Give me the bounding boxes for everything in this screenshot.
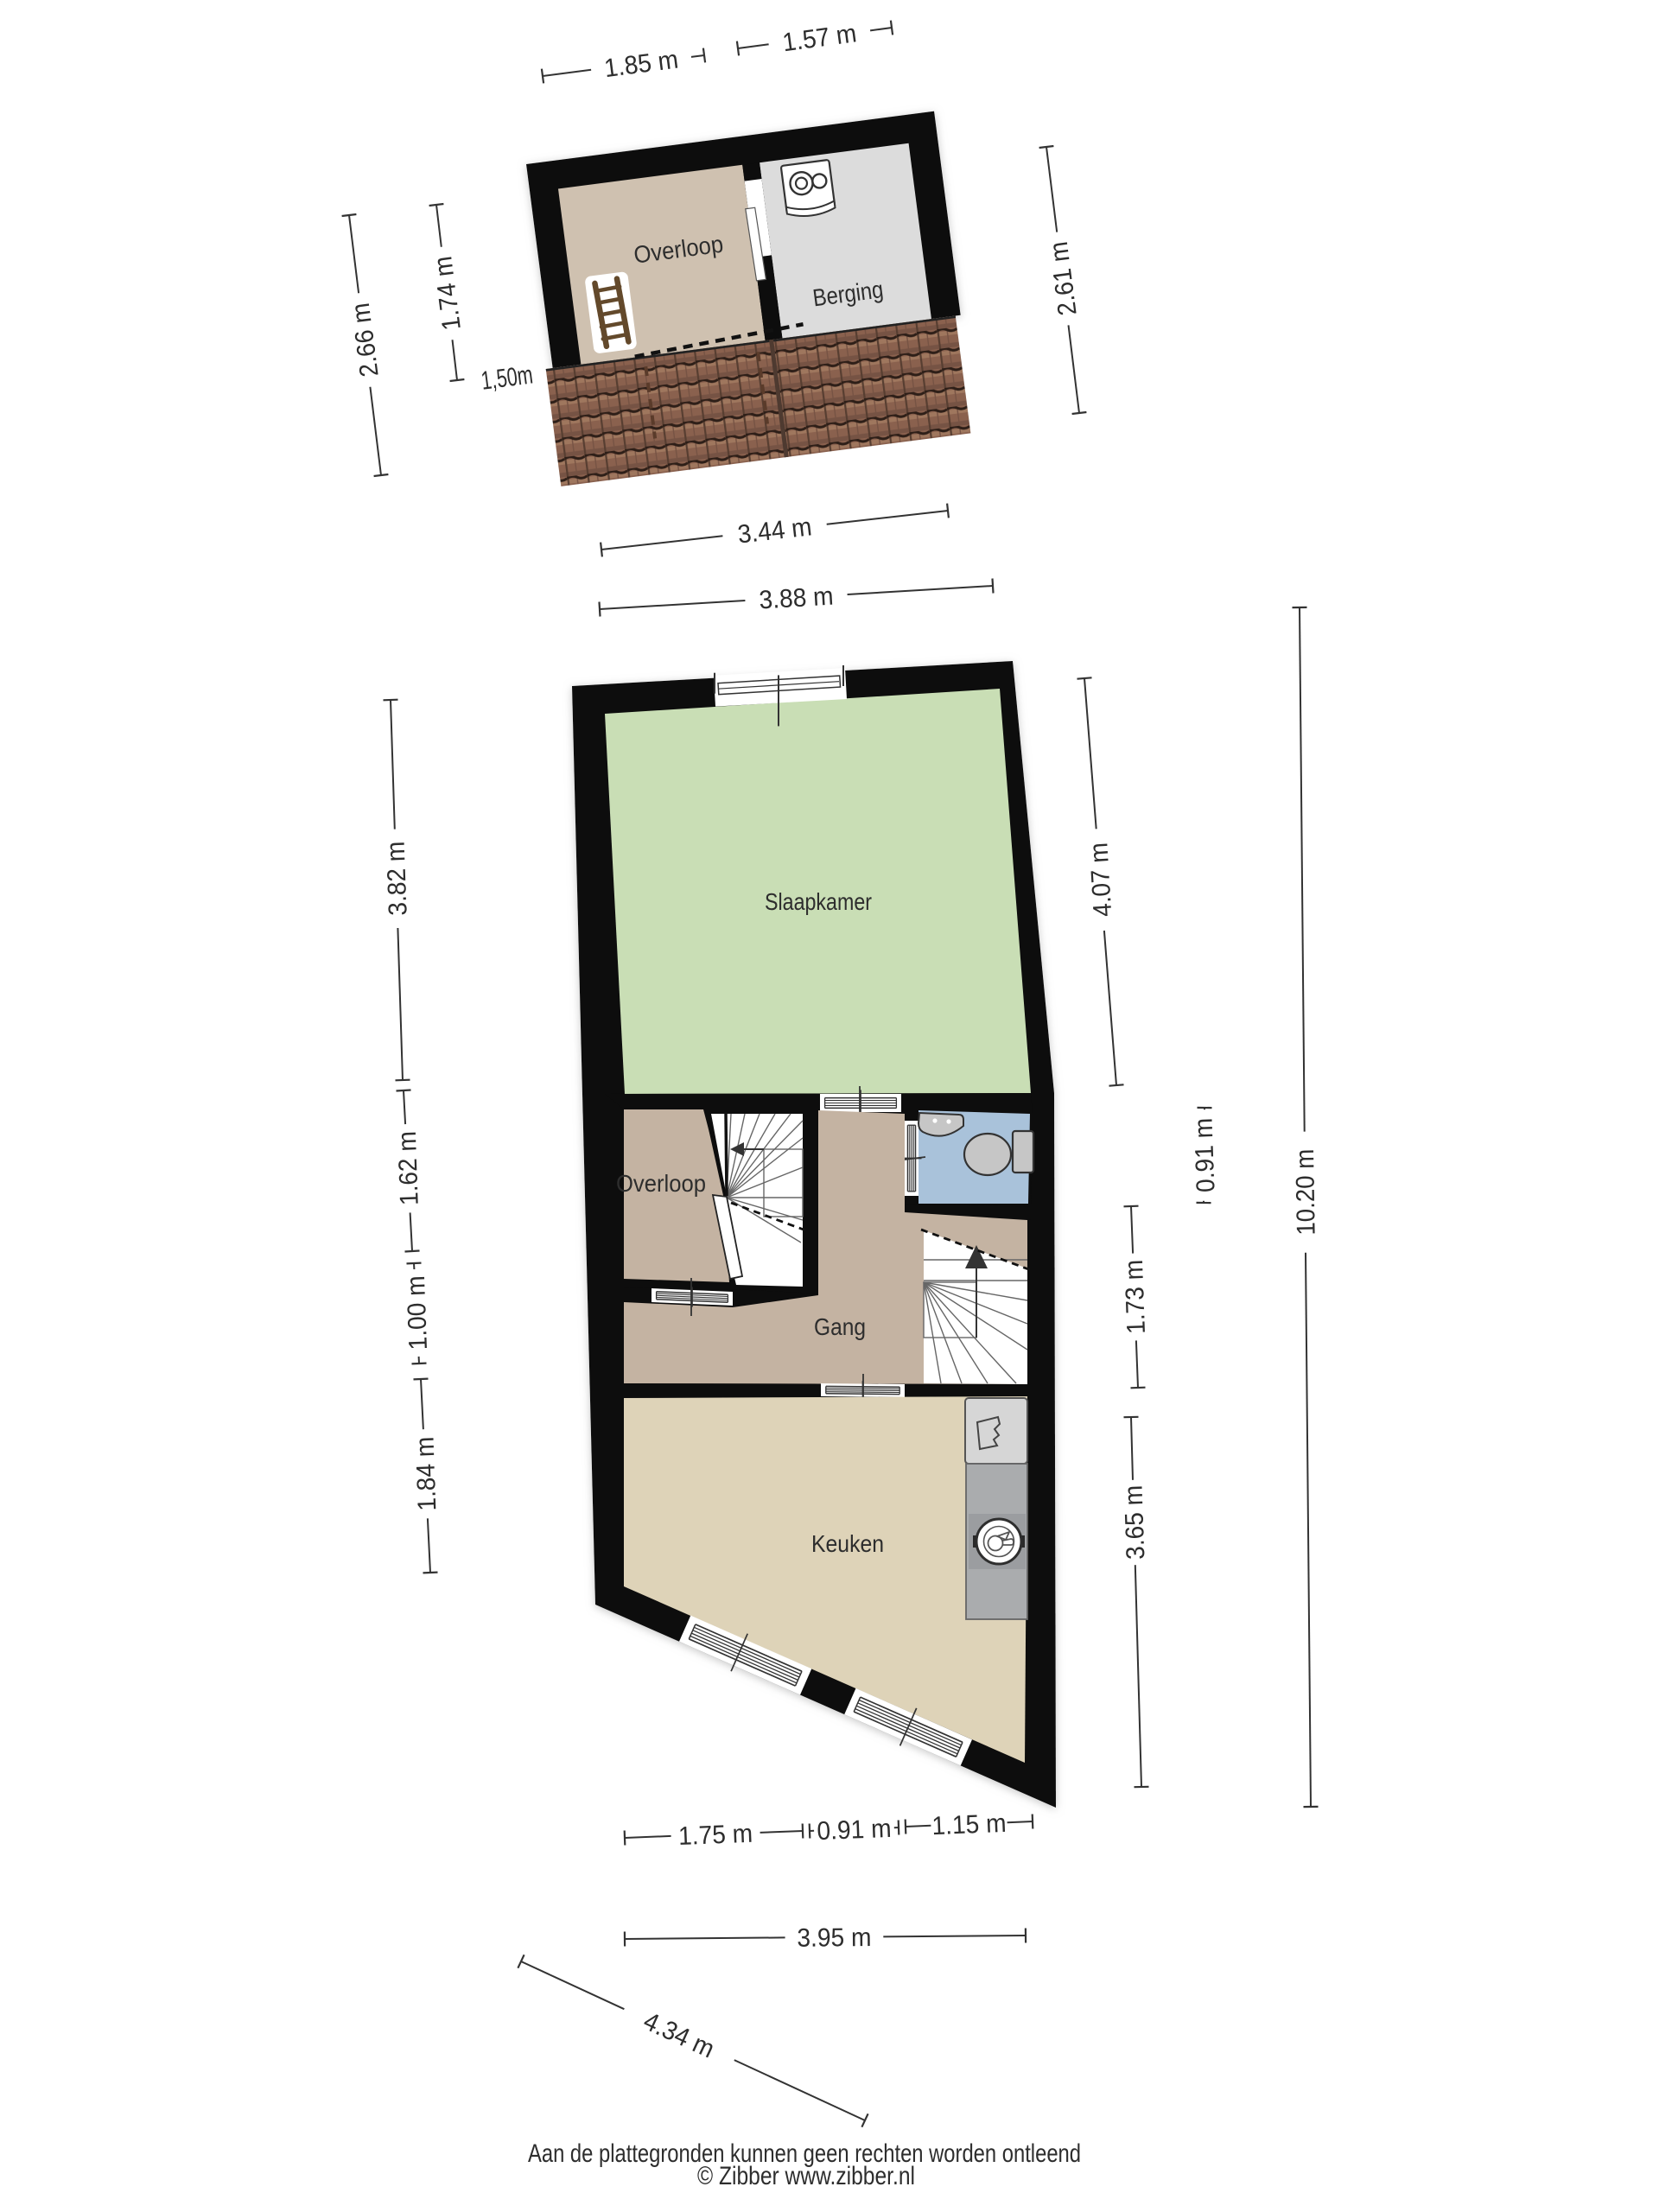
svg-text:© Zibber www.zibber.nl: © Zibber www.zibber.nl: [697, 2162, 915, 2190]
svg-text:Slaapkamer: Slaapkamer: [765, 888, 872, 915]
svg-text:3.82 m: 3.82 m: [382, 841, 413, 916]
svg-text:3.88 m: 3.88 m: [759, 582, 835, 614]
svg-text:0.91 m: 0.91 m: [1190, 1117, 1221, 1192]
svg-text:1.84 m: 1.84 m: [410, 1436, 442, 1511]
svg-text:3.65 m: 3.65 m: [1119, 1484, 1150, 1560]
svg-text:Keuken: Keuken: [811, 1530, 884, 1557]
svg-text:1.62 m: 1.62 m: [393, 1131, 424, 1206]
svg-text:1.00 m: 1.00 m: [402, 1275, 433, 1351]
svg-text:1.15 m: 1.15 m: [931, 1809, 1007, 1840]
svg-text:10.20 m: 10.20 m: [1291, 1148, 1321, 1236]
svg-text:0.91 m: 0.91 m: [817, 1815, 892, 1846]
svg-text:1.73 m: 1.73 m: [1120, 1259, 1151, 1334]
svg-text:1.75 m: 1.75 m: [678, 1820, 753, 1851]
svg-text:3.95 m: 3.95 m: [797, 1923, 871, 1953]
svg-text:Gang: Gang: [814, 1313, 866, 1340]
svg-text:Overloop: Overloop: [616, 1170, 706, 1197]
svg-text:4.07 m: 4.07 m: [1084, 842, 1117, 918]
